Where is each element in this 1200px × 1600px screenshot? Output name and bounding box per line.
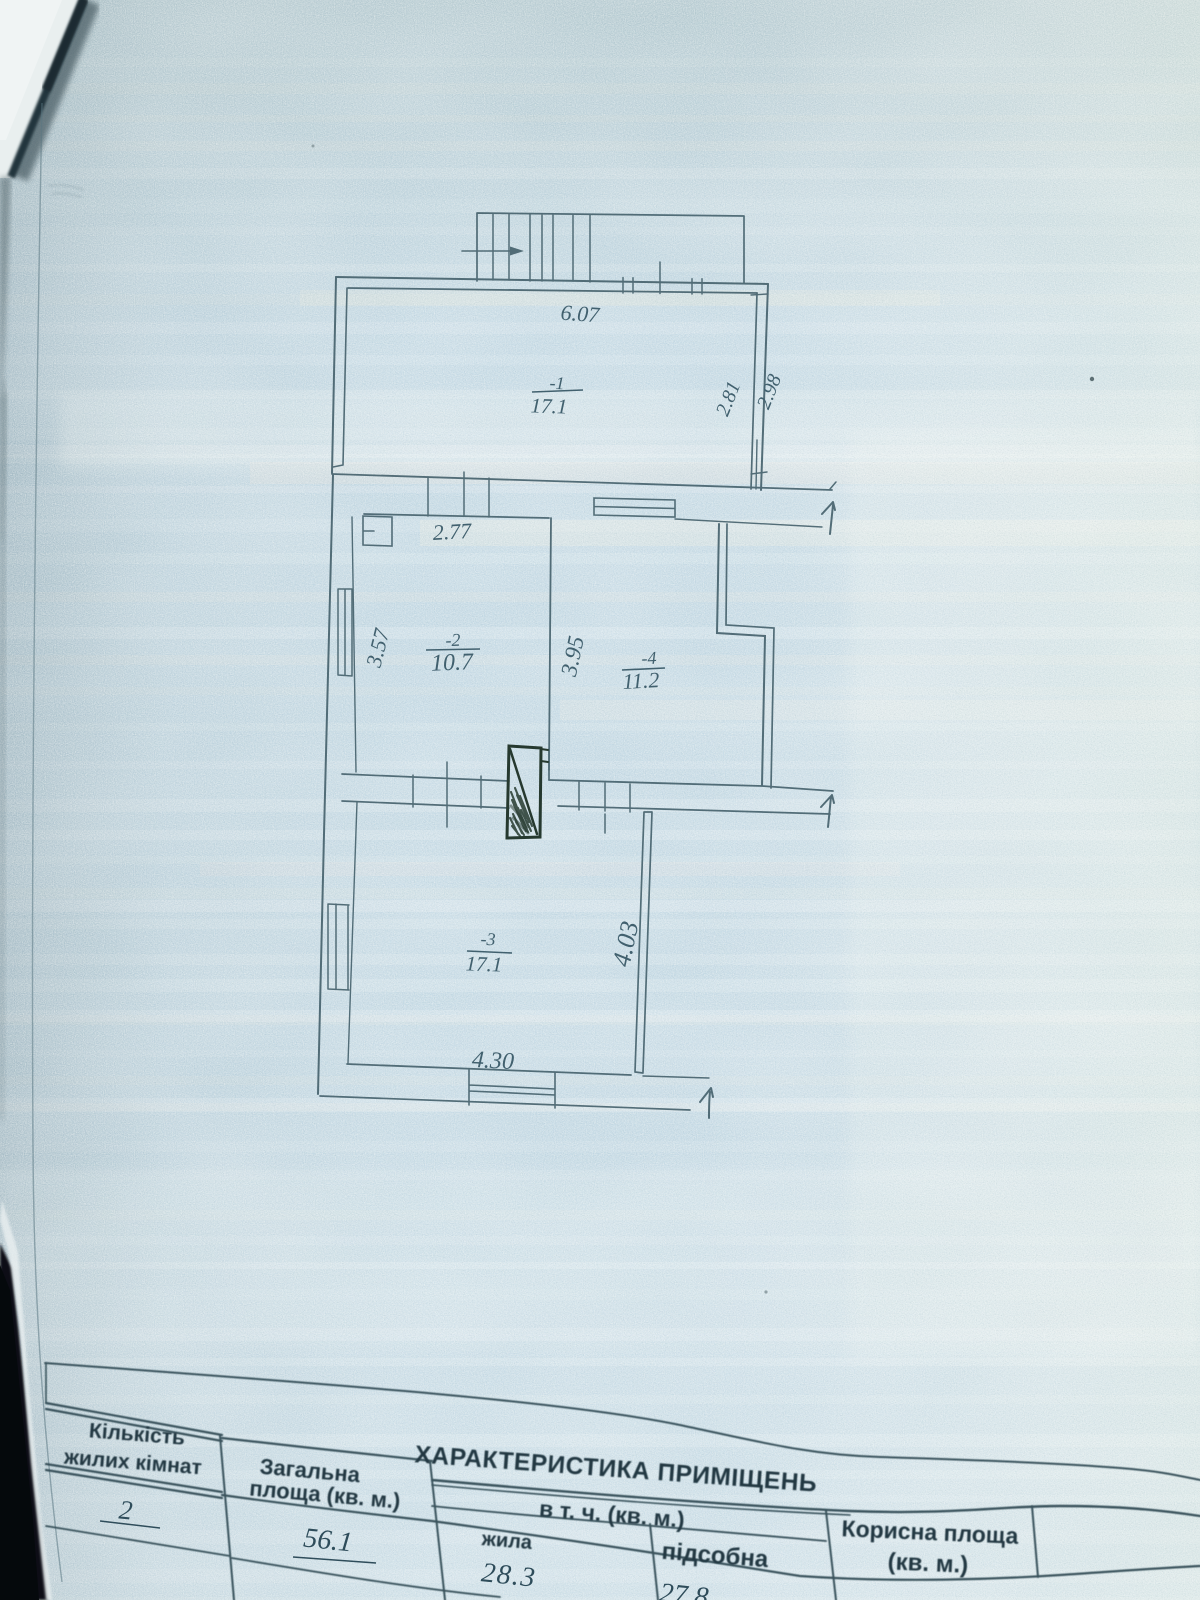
svg-text:жила: жила [480,1528,534,1554]
svg-text:2: 2 [118,1494,134,1525]
svg-text:10.7: 10.7 [431,649,475,676]
svg-text:-2: -2 [445,630,461,651]
svg-text:17.1: 17.1 [530,393,568,418]
svg-text:27.8: 27.8 [658,1578,710,1600]
svg-text:17.1: 17.1 [465,951,503,976]
svg-text:4.30: 4.30 [471,1047,514,1075]
svg-text:6.07: 6.07 [560,300,601,328]
svg-text:-4: -4 [641,648,657,669]
svg-text:56.1: 56.1 [302,1523,354,1559]
svg-text:-3: -3 [480,929,496,950]
svg-text:(кв. м.): (кв. м.) [887,1548,969,1578]
svg-text:2.77: 2.77 [432,518,473,545]
svg-text:28.3: 28.3 [480,1557,538,1594]
svg-text:11.2: 11.2 [622,667,660,694]
